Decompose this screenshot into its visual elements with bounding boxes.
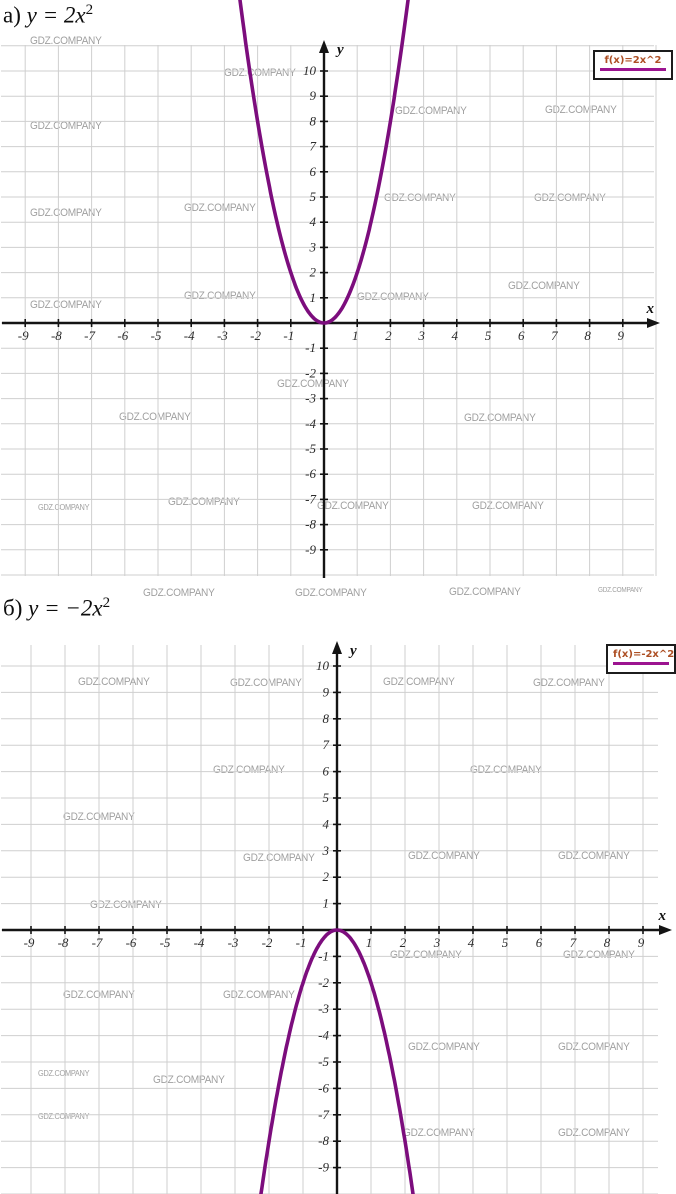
x-tick-label: -7 (84, 328, 95, 343)
chart-b-legend-color-swatch (613, 662, 669, 665)
chart-b-legend: f(x)=-2x^2 (606, 644, 676, 674)
y-tick-label: 2 (310, 265, 317, 280)
x-axis-label: x (646, 301, 655, 317)
x-tick-label: -4 (194, 935, 205, 950)
x-tick-label: -2 (250, 328, 261, 343)
x-tick-label: 6 (518, 328, 525, 343)
x-tick-label: 9 (638, 935, 645, 950)
y-tick-label: -6 (305, 466, 316, 481)
y-tick-label: 4 (323, 816, 330, 831)
x-tick-label: -3 (217, 328, 228, 343)
y-axis-arrow (332, 641, 342, 654)
y-tick-label: 6 (323, 764, 330, 779)
y-tick-label: 2 (323, 869, 330, 884)
chart-a-title-formula: y = 2x (27, 3, 86, 28)
x-tick-label: 7 (551, 328, 558, 343)
x-tick-label: 2 (385, 328, 392, 343)
y-tick-label: 6 (310, 164, 317, 179)
y-tick-label: -9 (305, 542, 316, 557)
y-tick-label: -4 (305, 416, 316, 431)
x-tick-label: -9 (24, 935, 35, 950)
y-tick-label: -9 (318, 1160, 329, 1175)
x-tick-label: 7 (570, 935, 577, 950)
x-tick-label: 6 (536, 935, 543, 950)
y-tick-label: 7 (323, 737, 330, 752)
y-tick-label: 7 (310, 139, 317, 154)
y-tick-label: -5 (305, 441, 316, 456)
y-tick-label: 5 (310, 189, 317, 204)
y-tick-label: -5 (318, 1054, 329, 1069)
chart-a-legend-color-swatch (600, 68, 666, 71)
y-tick-label: 1 (310, 290, 317, 305)
y-tick-label: 1 (323, 896, 330, 911)
x-axis-label: x (658, 908, 667, 924)
x-tick-label: -3 (228, 935, 239, 950)
chart-a-title-prefix: а) (3, 3, 27, 28)
x-axis-arrow (659, 925, 672, 935)
x-tick-label: -6 (117, 328, 128, 343)
chart-a-title-exponent: 2 (86, 2, 94, 18)
x-tick-label: 5 (502, 935, 509, 950)
x-tick-label: -5 (160, 935, 171, 950)
y-tick-label: 8 (323, 711, 330, 726)
x-tick-label: -1 (296, 935, 307, 950)
chart-a-plot: -9-8-7-6-5-4-3-2-112345678910987654321-1… (0, 0, 676, 600)
chart-a-legend-label: f(x)=2x^2 (600, 55, 666, 66)
y-tick-label: -4 (318, 1028, 329, 1043)
y-tick-label: -1 (318, 948, 329, 963)
x-tick-label: -8 (58, 935, 69, 950)
y-tick-label: 9 (310, 88, 317, 103)
chart-a-title: а) y = 2x2 (3, 2, 93, 28)
y-tick-label: -1 (305, 340, 316, 355)
chart-b-title-exponent: 2 (103, 595, 111, 611)
y-tick-label: -8 (305, 517, 316, 532)
x-tick-label: 1 (366, 935, 373, 950)
x-tick-label: -2 (262, 935, 273, 950)
x-tick-label: 3 (417, 328, 425, 343)
x-tick-label: -9 (18, 328, 29, 343)
x-tick-label: 3 (433, 935, 441, 950)
x-tick-label: 8 (604, 935, 611, 950)
y-tick-label: 10 (303, 63, 317, 78)
x-tick-label: -7 (92, 935, 103, 950)
chart-b-title-formula: y = −2x (28, 596, 102, 621)
y-axis-label: y (348, 643, 357, 659)
x-tick-label: -1 (283, 328, 294, 343)
chart-b-title-prefix: б) (3, 596, 28, 621)
y-tick-label: 9 (323, 684, 330, 699)
chart-b-plot: -9-8-7-6-5-4-3-2-112345678910987654321-1… (0, 600, 676, 1194)
y-tick-label: 3 (322, 843, 330, 858)
chart-a-legend: f(x)=2x^2 (593, 50, 673, 80)
x-tick-label: -8 (51, 328, 62, 343)
x-tick-label: 9 (618, 328, 625, 343)
x-tick-label: -4 (184, 328, 195, 343)
y-tick-label: -3 (318, 1001, 329, 1016)
x-tick-label: 2 (400, 935, 407, 950)
y-tick-label: 5 (323, 790, 330, 805)
y-axis-label: y (335, 42, 344, 58)
y-tick-label: 10 (316, 658, 330, 673)
y-tick-label: -7 (305, 491, 316, 506)
y-tick-label: -8 (318, 1133, 329, 1148)
x-tick-label: 4 (452, 328, 459, 343)
x-tick-label: -5 (151, 328, 162, 343)
y-tick-label: 8 (310, 113, 317, 128)
y-tick-label: 4 (310, 214, 317, 229)
y-tick-label: -3 (305, 391, 316, 406)
y-tick-label: -7 (318, 1107, 329, 1122)
x-tick-label: -6 (126, 935, 137, 950)
x-tick-label: 8 (584, 328, 591, 343)
x-tick-label: 4 (468, 935, 475, 950)
chart-b-title: б) y = −2x2 (3, 595, 110, 621)
y-tick-label: -6 (318, 1080, 329, 1095)
y-tick-label: -2 (305, 365, 316, 380)
x-axis-arrow (647, 318, 660, 328)
chart-b-legend-label: f(x)=-2x^2 (613, 649, 669, 660)
y-tick-label: -2 (318, 975, 329, 990)
y-axis-arrow (319, 40, 329, 53)
x-tick-label: 5 (485, 328, 492, 343)
y-tick-label: 3 (309, 239, 317, 254)
x-tick-label: 1 (352, 328, 359, 343)
